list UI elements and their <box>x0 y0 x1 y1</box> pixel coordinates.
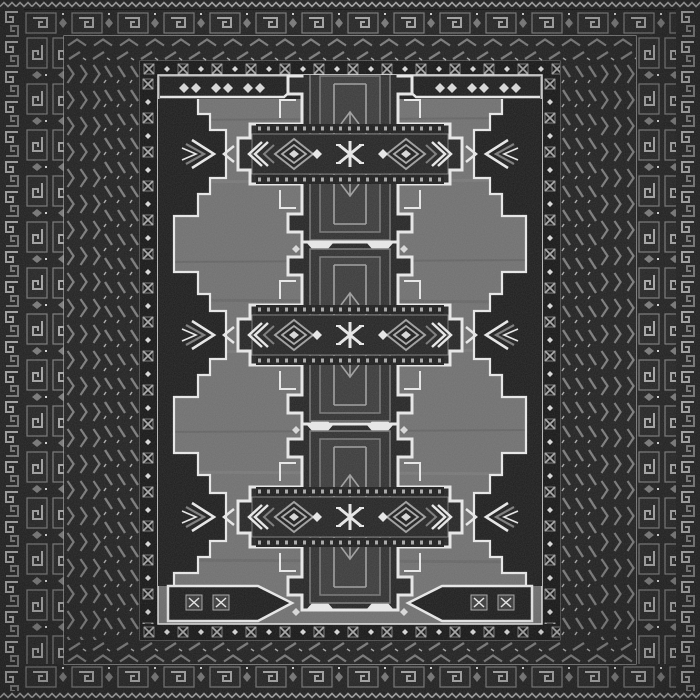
rug-photograph <box>0 0 700 700</box>
rug-photo-frame <box>0 0 700 700</box>
film-grain-overlay <box>0 0 700 700</box>
